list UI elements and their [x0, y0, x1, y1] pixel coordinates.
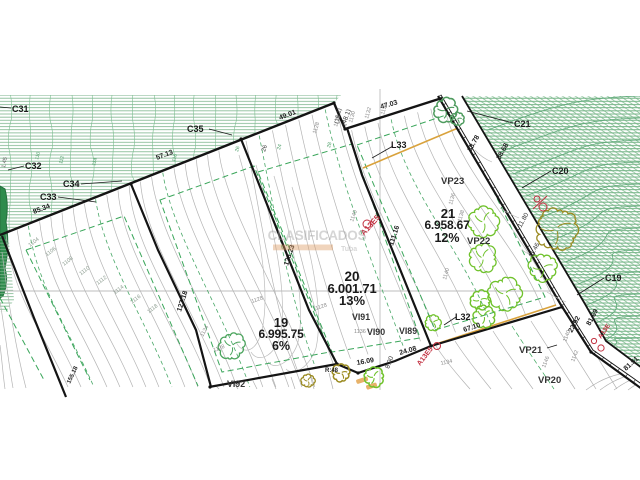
svg-text:C19: C19	[605, 273, 622, 283]
svg-text:6%: 6%	[272, 339, 290, 353]
svg-text:L32: L32	[455, 312, 471, 322]
svg-text:C34: C34	[63, 179, 80, 189]
svg-text:VI89: VI89	[399, 326, 417, 336]
svg-text:13%: 13%	[339, 293, 365, 308]
svg-text:C20: C20	[552, 166, 569, 176]
svg-text:C33: C33	[40, 192, 57, 202]
svg-text:VP20: VP20	[538, 375, 561, 386]
svg-text:C32: C32	[25, 161, 42, 171]
svg-text:CLASIFICADOS: CLASIFICADOS	[268, 228, 367, 243]
svg-text:12%: 12%	[434, 231, 459, 245]
svg-text:1136: 1136	[354, 329, 366, 335]
svg-text:C31: C31	[12, 104, 29, 114]
svg-text:VI91: VI91	[352, 312, 370, 322]
svg-text:VI90: VI90	[367, 327, 385, 337]
svg-text:VP22: VP22	[467, 236, 490, 247]
svg-text:L33: L33	[391, 140, 407, 150]
svg-text:VP23: VP23	[441, 176, 464, 187]
svg-text:VI92: VI92	[227, 379, 245, 389]
svg-text:C21: C21	[514, 119, 531, 129]
svg-text:Tuba: Tuba	[341, 246, 357, 253]
svg-text:VP21: VP21	[519, 345, 543, 356]
svg-text:C35: C35	[187, 124, 204, 134]
svg-text:R:48: R:48	[325, 368, 339, 374]
